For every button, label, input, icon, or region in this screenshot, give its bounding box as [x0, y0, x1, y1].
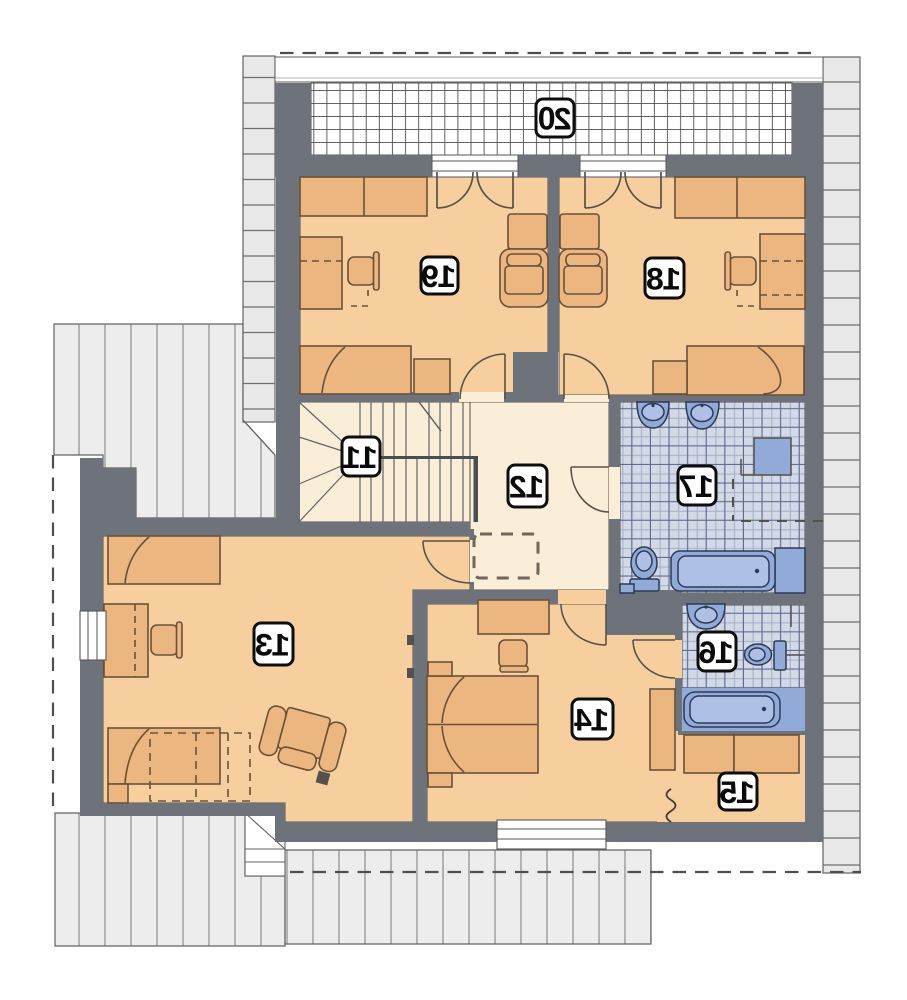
- svg-text:17: 17: [679, 470, 714, 507]
- svg-text:16: 16: [699, 636, 734, 673]
- svg-text:20: 20: [538, 101, 573, 140]
- svg-text:14: 14: [574, 704, 610, 741]
- svg-text:19: 19: [422, 260, 457, 297]
- svg-text:11: 11: [343, 441, 378, 478]
- svg-text:13: 13: [256, 629, 291, 666]
- svg-text:15: 15: [720, 776, 755, 813]
- svg-text:18: 18: [647, 263, 682, 300]
- svg-text:12: 12: [510, 471, 545, 508]
